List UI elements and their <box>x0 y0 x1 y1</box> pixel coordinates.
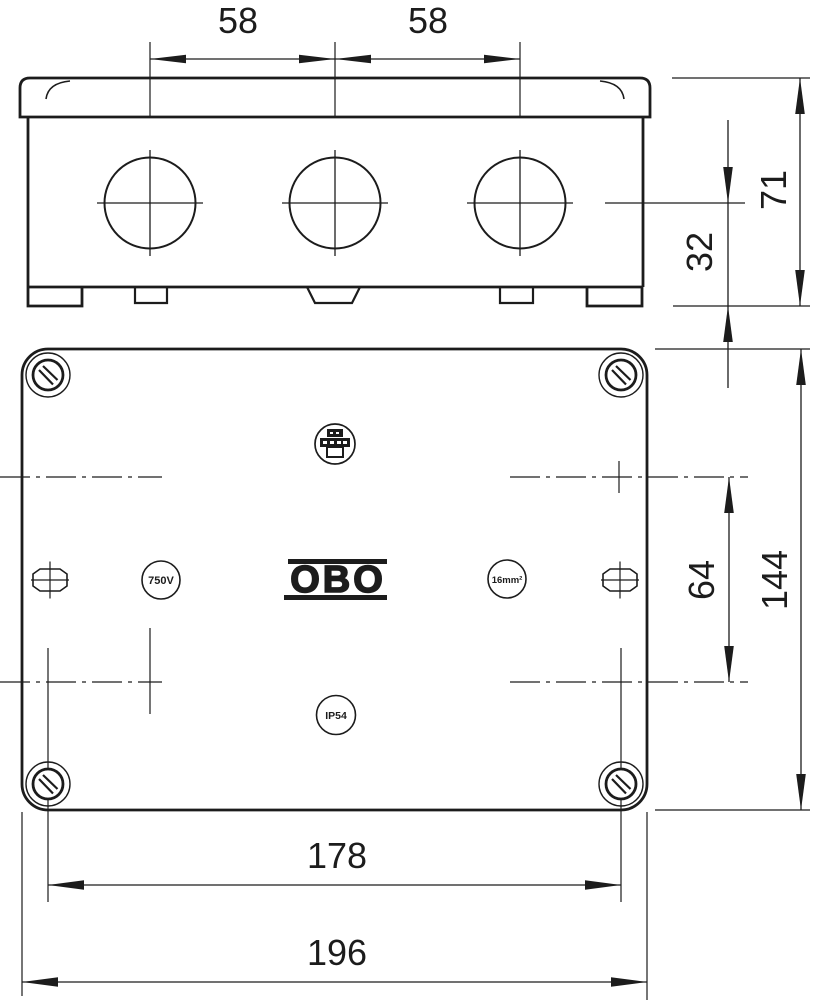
knockout-circle-2 <box>282 150 388 256</box>
plan-view: 750V 16mm² IP54 OBO <box>0 349 748 902</box>
marking-16mm2-label: 16mm² <box>492 575 523 586</box>
side-view-dimensions: 58 58 71 32 <box>150 0 810 388</box>
marking-750v-label: 750V <box>148 575 174 587</box>
corner-screw-top-left <box>26 353 70 397</box>
tab-trapezoid <box>307 287 360 303</box>
dim-58-left-label: 58 <box>218 0 258 41</box>
marking-750v: 750V <box>142 561 180 599</box>
dim-32-label: 32 <box>679 232 720 272</box>
corner-screw-bottom-right <box>599 762 643 806</box>
marking-16mm2: 16mm² <box>488 560 526 598</box>
side-view <box>20 78 745 306</box>
dim-71-label: 71 <box>753 170 794 210</box>
dim-178: 178 <box>48 835 621 890</box>
dim-64: 64 <box>681 477 734 682</box>
knockout-circle-3 <box>467 150 573 256</box>
foot-left <box>28 287 82 306</box>
dim-144-label: 144 <box>754 550 795 610</box>
tab-2 <box>500 287 533 303</box>
corner-screw-top-right <box>599 353 643 397</box>
marking-ip54-label: IP54 <box>325 710 347 722</box>
tab-1 <box>135 287 167 303</box>
dim-196-label: 196 <box>307 932 367 973</box>
corner-screw-bottom-left <box>26 762 70 806</box>
dim-71: 71 <box>753 78 805 306</box>
dim-196: 196 <box>22 932 647 987</box>
technical-drawing: 58 58 71 32 <box>0 0 816 1000</box>
knockout-circle-1 <box>97 150 203 256</box>
side-view-tabs <box>135 287 533 303</box>
certification-mark-icon <box>315 424 355 464</box>
marking-ip54: IP54 <box>317 696 356 735</box>
dim-64-label: 64 <box>681 560 722 600</box>
dim-178-label: 178 <box>307 835 367 876</box>
obo-logo: OBO <box>284 559 387 601</box>
dim-32: 32 <box>679 120 733 388</box>
dim-144: 144 <box>754 349 806 810</box>
obo-logo-text: OBO <box>290 559 386 601</box>
foot-right <box>587 287 642 306</box>
dim-58-right-label: 58 <box>408 0 448 41</box>
